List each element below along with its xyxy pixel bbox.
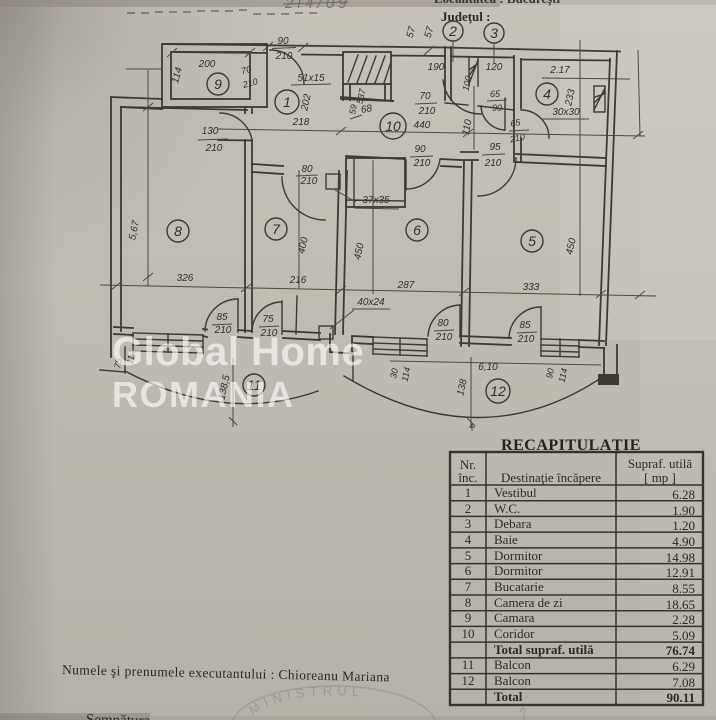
svg-text:W.C.: W.C. [494,501,520,516]
svg-text:Vestibul: Vestibul [494,485,537,500]
svg-text:65: 65 [490,89,501,99]
svg-text:1: 1 [283,94,291,110]
svg-text:210: 210 [275,51,293,62]
svg-text:Balcon: Balcon [494,657,531,672]
svg-text:1.20: 1.20 [672,518,695,533]
svg-text:218: 218 [292,117,310,128]
svg-text:Balcon: Balcon [494,673,531,688]
svg-text:1.90: 1.90 [672,503,695,518]
svg-text:18.65: 18.65 [666,597,695,612]
svg-text:înc.: înc. [457,470,477,485]
svg-text:Dormitor: Dormitor [494,548,543,563]
svg-text:8.55: 8.55 [672,581,695,596]
svg-text:Supraf. utilă: Supraf. utilă [628,456,692,471]
svg-text:11: 11 [462,657,475,672]
svg-text:3: 3 [490,25,498,41]
svg-text:51x15: 51x15 [297,73,325,84]
svg-text:200: 200 [198,59,216,70]
svg-text:Debara: Debara [494,516,532,531]
svg-text:59: 59 [347,103,359,115]
svg-text:7.08: 7.08 [672,675,695,690]
svg-text:[ mp ]: [ mp ] [644,470,676,485]
svg-text:2.28: 2.28 [672,612,695,627]
svg-text:1: 1 [465,485,472,500]
svg-text:76.74: 76.74 [666,643,696,658]
svg-text:14.98: 14.98 [666,550,695,565]
svg-text:85: 85 [519,320,531,331]
svg-text:90: 90 [414,144,426,155]
svg-text:326: 326 [177,273,194,284]
svg-text:216: 216 [289,275,307,286]
svg-text:ROMANIA: ROMANIA [112,374,294,415]
svg-text:210: 210 [517,334,535,345]
svg-text:287: 287 [397,280,415,291]
svg-text:80: 80 [437,318,449,329]
svg-text:90: 90 [544,367,556,379]
svg-text:210: 210 [484,158,502,169]
svg-text:Localitatea : Bucureşti: Localitatea : Bucureşti [434,0,561,6]
svg-text:210: 210 [413,158,431,169]
svg-text:8: 8 [465,595,472,610]
svg-text:Total: Total [494,689,523,704]
svg-text:333: 333 [523,282,540,293]
svg-text:5: 5 [528,233,536,249]
svg-text:5: 5 [465,548,472,563]
svg-text:6: 6 [413,222,421,238]
svg-text:440: 440 [414,120,431,131]
svg-text:4: 4 [543,86,551,102]
svg-text:Camera de zi: Camera de zi [494,595,563,610]
svg-text:12: 12 [490,383,506,399]
svg-text:95: 95 [489,142,501,153]
svg-text:Semnătura: Semnătura [86,712,151,720]
svg-text:7: 7 [465,579,472,594]
svg-text:12.91: 12.91 [666,565,695,580]
svg-text:190: 190 [428,62,445,73]
svg-text:2.17: 2.17 [549,65,570,76]
svg-text:Dormitor: Dormitor [494,563,543,578]
svg-text:30x30: 30x30 [552,107,580,118]
svg-text:2: 2 [465,501,472,516]
svg-text:Baie: Baie [494,532,518,547]
svg-text:90: 90 [492,103,502,113]
svg-text:9: 9 [465,610,472,625]
svg-text:40x24: 40x24 [357,297,385,308]
svg-text:37x35: 37x35 [362,195,390,206]
svg-text:90.11: 90.11 [666,690,695,705]
svg-text:10: 10 [385,118,401,134]
svg-text:7: 7 [272,221,281,237]
svg-text:2: 2 [448,23,457,39]
svg-text:10: 10 [462,626,475,641]
svg-text:Total supraf. utilă: Total supraf. utilă [494,642,594,657]
svg-text:9: 9 [214,76,222,92]
svg-text:4.90: 4.90 [672,534,695,549]
svg-text:5.09: 5.09 [672,628,695,643]
svg-text:Destinaţie încăpere: Destinaţie încăpere [501,470,601,485]
svg-text:6.28: 6.28 [672,487,695,502]
svg-text:90: 90 [277,36,289,47]
svg-text:Coridor: Coridor [494,626,535,641]
svg-text:210: 210 [205,143,223,154]
svg-text:210: 210 [418,106,436,117]
svg-text:70: 70 [419,91,431,102]
svg-text:8: 8 [174,223,182,239]
svg-text:Global Home: Global Home [112,330,364,374]
svg-text:12: 12 [462,673,475,688]
svg-text:210: 210 [300,176,318,187]
svg-text:Camara: Camara [494,610,535,625]
svg-text:30: 30 [388,367,400,379]
svg-text:210: 210 [435,332,453,343]
svg-text:85: 85 [216,312,228,323]
svg-text:75: 75 [262,314,274,325]
svg-text:3: 3 [465,516,472,531]
svg-text:120: 120 [486,62,503,73]
svg-text:6,10: 6,10 [478,362,498,373]
svg-text:130: 130 [202,126,219,137]
svg-text:6: 6 [465,563,472,578]
svg-text:4: 4 [465,532,472,547]
svg-text:Bucatarie: Bucatarie [494,579,544,594]
svg-text:80: 80 [301,164,313,175]
svg-text:6.29: 6.29 [672,659,695,674]
